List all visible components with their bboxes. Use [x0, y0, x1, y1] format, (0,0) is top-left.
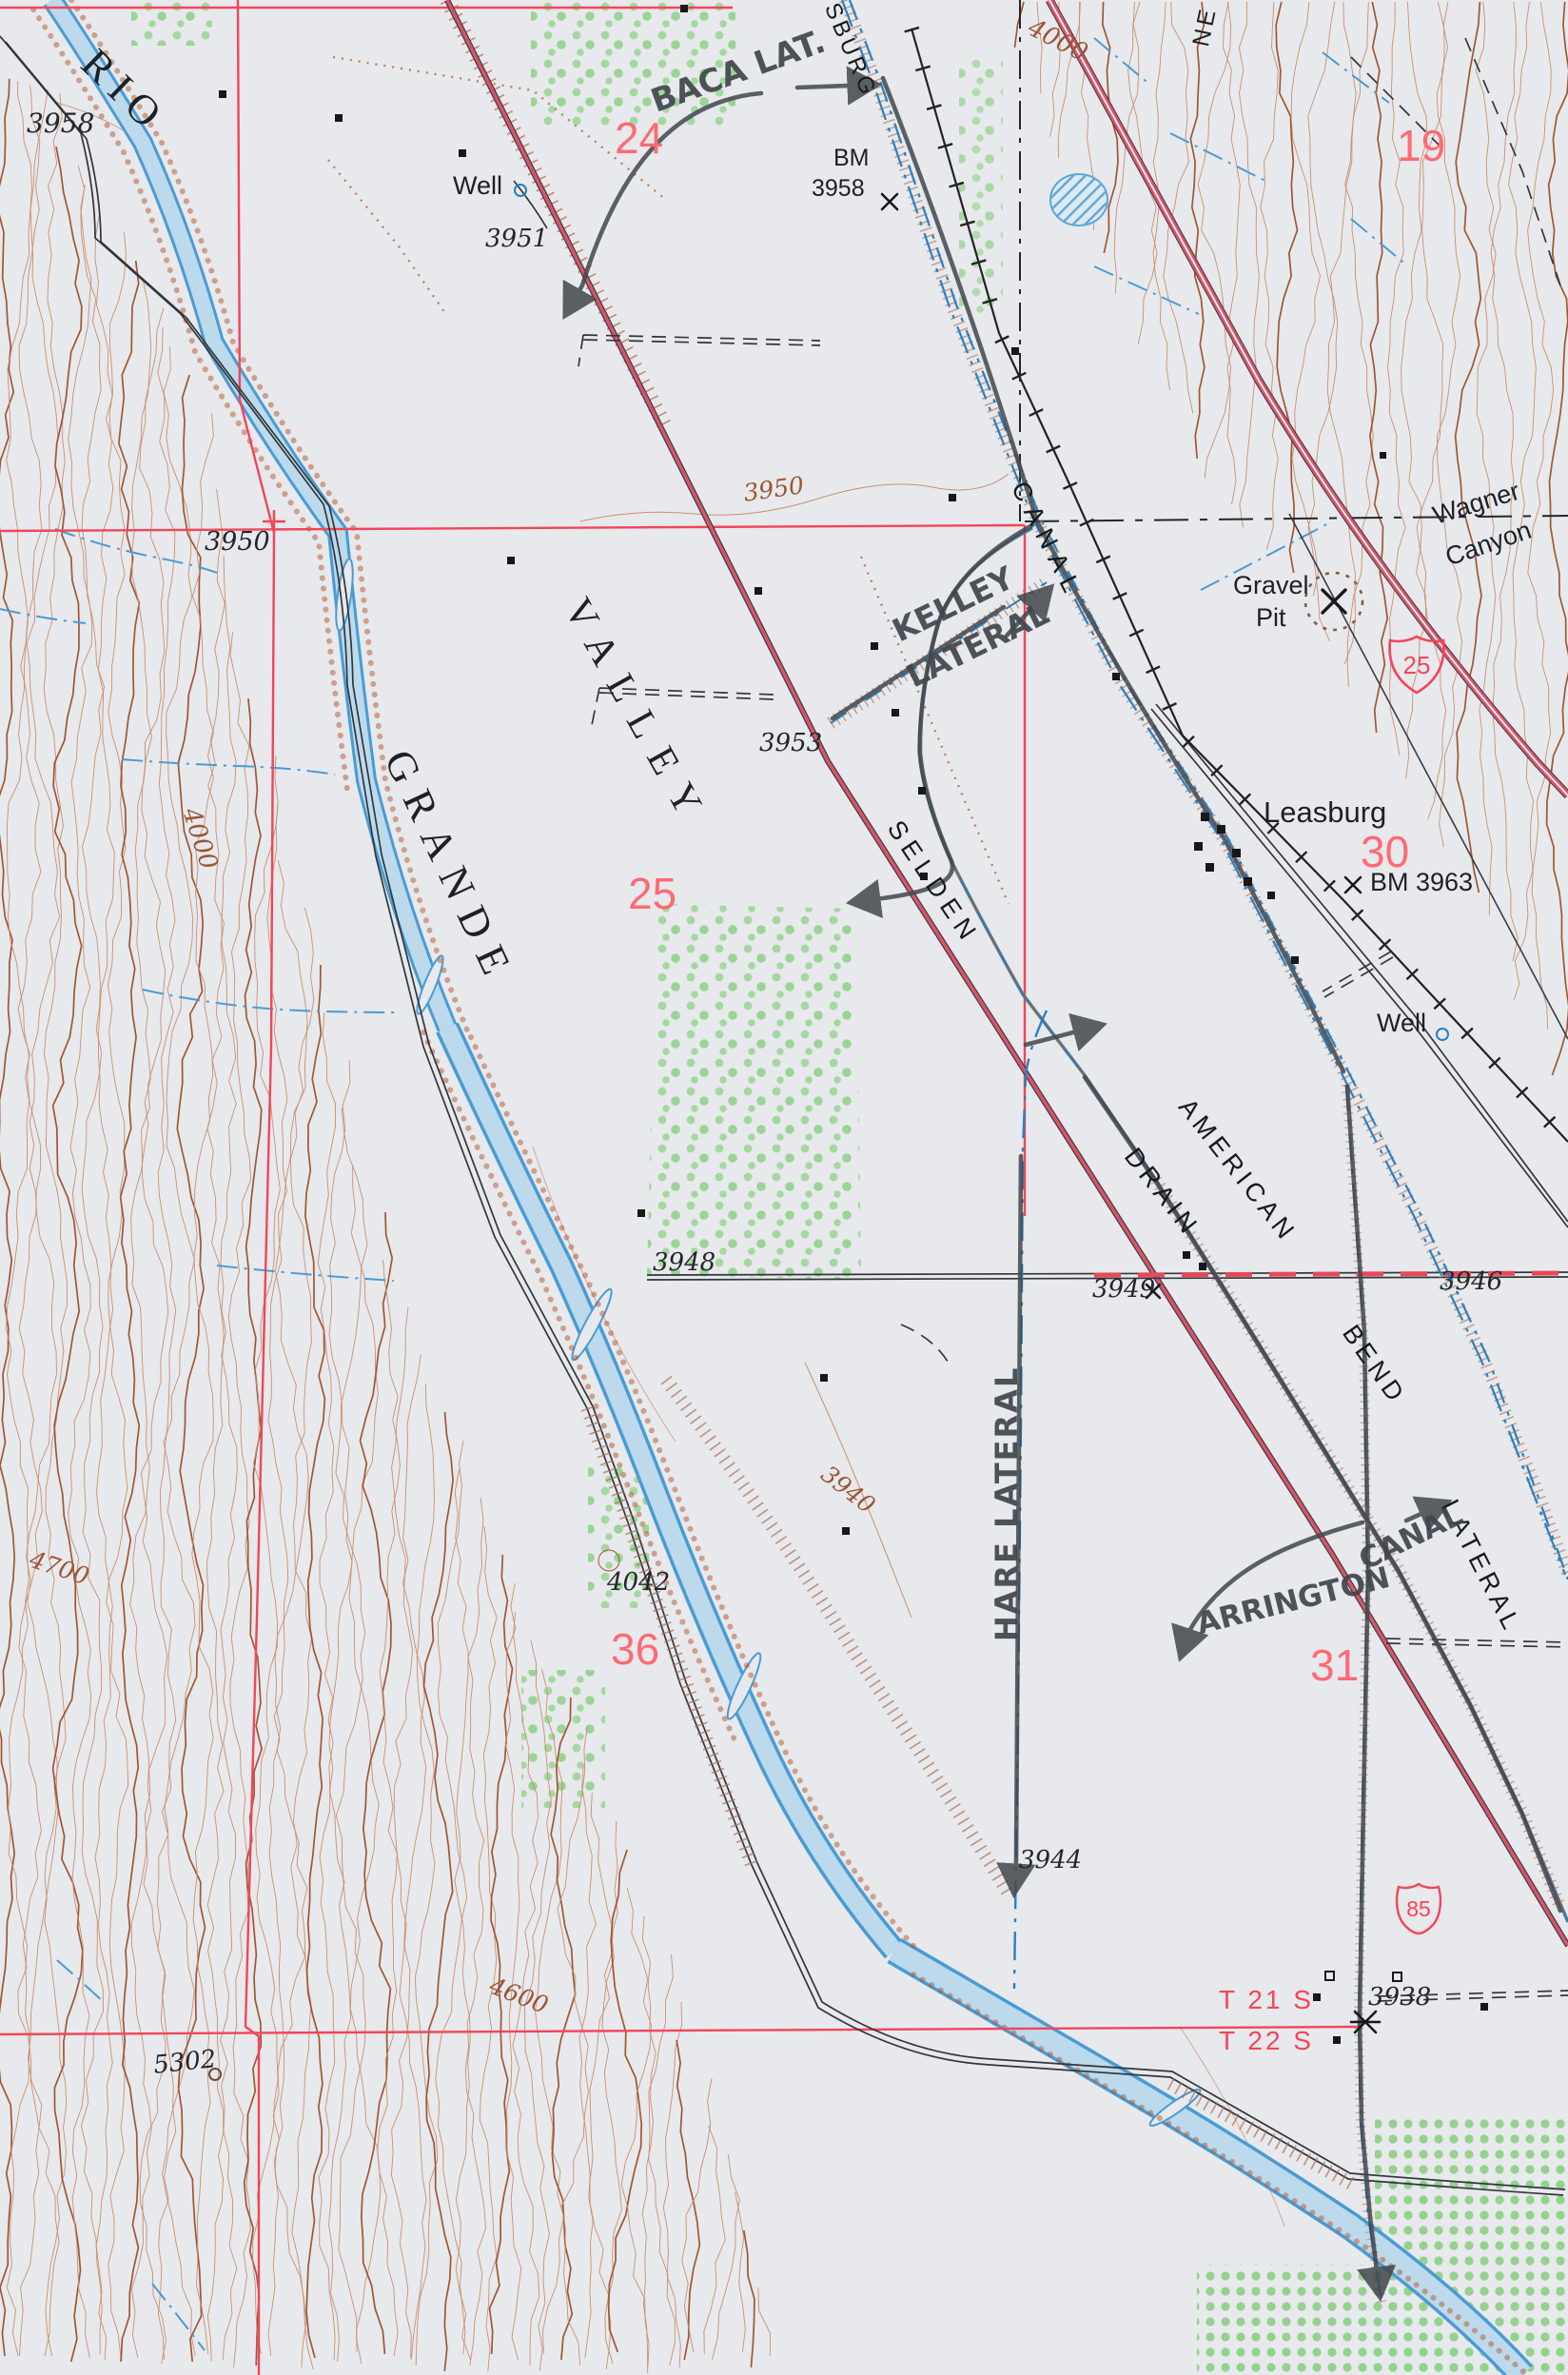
- us-85-number: 85: [1406, 1896, 1431, 1921]
- kelley-lateral: [831, 582, 1047, 723]
- dotted-boundaries: [328, 57, 1009, 904]
- map-terrain-drawing: [0, 0, 1568, 2375]
- spot-5302-circle: [209, 2069, 221, 2080]
- railroad: [911, 29, 1568, 1142]
- contour-lines-northeast: [1015, 2, 1568, 1075]
- gravel-pit-symbol: [1305, 573, 1362, 630]
- interstate-25-number: 25: [1403, 651, 1431, 679]
- benchmark-x-marks: [882, 194, 1380, 2032]
- highway-red-main: [447, 0, 1568, 1946]
- topo-map: 25 85 3958RIOGRANDEVALLEYWell3951BACA LA…: [0, 0, 1568, 2375]
- pond: [1050, 174, 1107, 226]
- interstate-25-shield: 25: [1387, 634, 1446, 697]
- us-85-shield: 85: [1393, 1882, 1444, 1935]
